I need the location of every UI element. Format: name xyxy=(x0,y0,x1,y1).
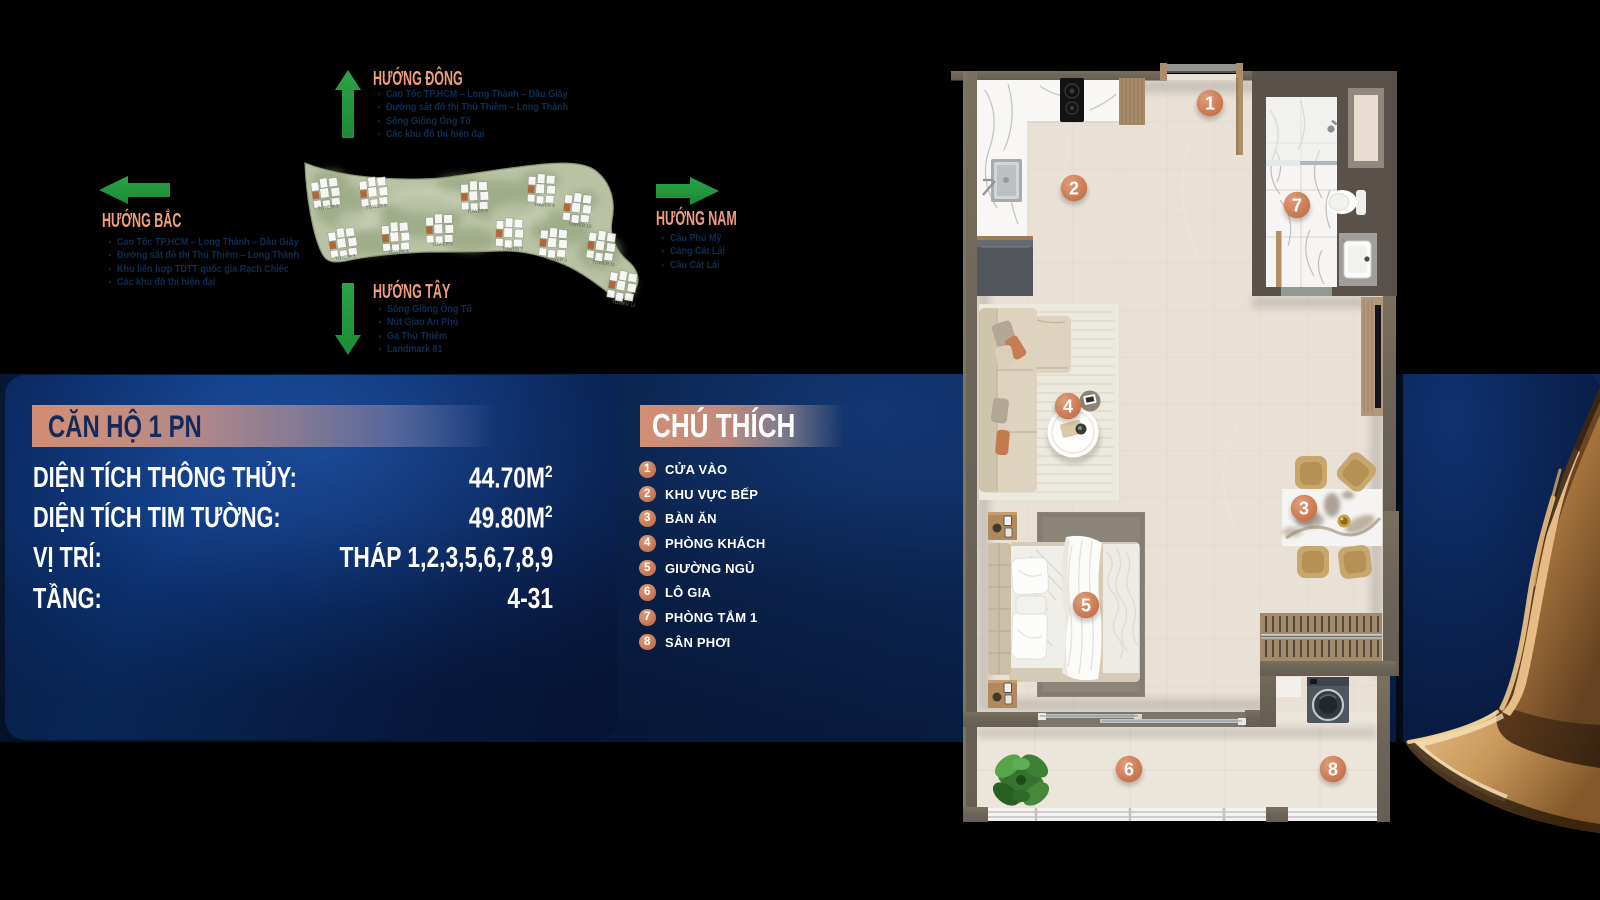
svg-text:TOWER 9: TOWER 9 xyxy=(546,256,568,263)
svg-text:TOWER 5: TOWER 5 xyxy=(432,241,453,247)
svg-text:TOWER 7: TOWER 7 xyxy=(502,246,523,252)
svg-text:1: 1 xyxy=(1205,94,1215,114)
svg-text:5: 5 xyxy=(1081,596,1091,616)
svg-text:TOWER 6: TOWER 6 xyxy=(467,208,488,214)
svg-text:7: 7 xyxy=(1292,196,1302,216)
svg-text:TOWER 4: TOWER 4 xyxy=(388,249,410,255)
svg-text:4: 4 xyxy=(1063,397,1073,417)
svg-text:2: 2 xyxy=(1069,179,1079,199)
svg-text:8: 8 xyxy=(1328,760,1338,780)
svg-text:6: 6 xyxy=(1124,760,1134,780)
svg-text:3: 3 xyxy=(1299,499,1309,519)
